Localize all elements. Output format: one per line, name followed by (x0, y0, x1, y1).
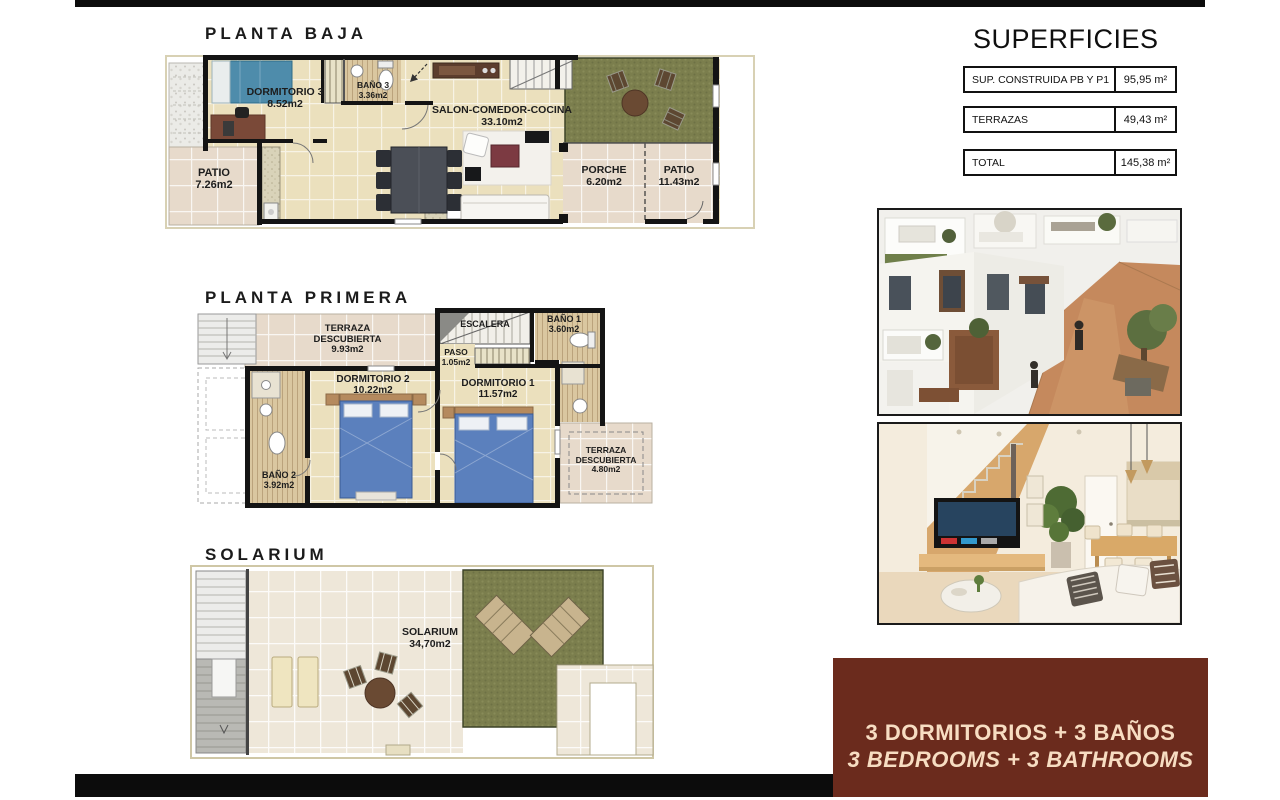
room-label-terraza1: TERRAZA DESCUBIERTA9.93m2 (290, 324, 405, 356)
wardrobe-icon (475, 348, 530, 364)
feature-banner: 3 DORMITORIOS + 3 BAÑOS 3 BEDROOMS + 3 B… (833, 658, 1208, 797)
stairs-icon (196, 571, 246, 753)
superficies-row-terrazas: TERRAZAS 49,43 m² (963, 106, 1177, 133)
stairs-divider-wall (246, 569, 249, 755)
room-label-bano2: BAÑO 23.92m2 (250, 470, 308, 490)
superficies-row-label: SUP. CONSTRUIDA PB Y P1 (965, 68, 1114, 91)
room-label-porche: PORCHE6.20m2 (563, 165, 645, 189)
superficies-row-label: TOTAL (965, 151, 1114, 174)
planta-baja-title: PLANTA BAJA (205, 24, 367, 44)
room-label-dormitorio2: DORMITORIO 210.22m2 (317, 374, 429, 396)
superficies-title: SUPERFICIES (973, 24, 1159, 55)
planta-baja-floorplan: DORMITORIO 38.52m2 BAÑO 33.36m2 SALON-CO… (165, 55, 755, 230)
banner-line-english: 3 BEDROOMS + 3 BATHROOMS (843, 746, 1198, 773)
brochure-page: { "titles": { "planta_baja": "PLANTA BAJ… (0, 0, 1280, 800)
room-label-paso: PASO1.05m2 (433, 348, 479, 367)
room-label-escalera: ESCALERA (445, 319, 525, 329)
interior-render-illustration (879, 424, 1180, 623)
room-label-bano3: BAÑO 33.36m2 (341, 81, 405, 100)
planta-baja-drawing (165, 55, 755, 230)
side-gravel-strip (169, 63, 205, 147)
room-label-solarium: SOLARIUM34,70m2 (375, 627, 485, 651)
lounge-area-icons (461, 131, 551, 221)
superficies-row-value: 145,38 m² (1114, 151, 1175, 174)
exterior-render-illustration (879, 210, 1180, 414)
planta-primera-title: PLANTA PRIMERA (205, 288, 411, 308)
dining-table-icon (376, 147, 462, 213)
room-label-bano1: BAÑO 13.60m2 (532, 314, 596, 334)
solarium-floorplan: SOLARIUM34,70m2 (190, 565, 660, 761)
bed1-icon (443, 407, 533, 503)
exterior-render-photo (877, 208, 1182, 416)
solarium-title: SOLARIUM (205, 545, 328, 565)
room-label-salon: SALON-COMEDOR-COCINA33.10m2 (423, 105, 581, 129)
banner-line-spanish: 3 DORMITORIOS + 3 BAÑOS (843, 719, 1198, 746)
superficies-row-total: TOTAL 145,38 m² (963, 149, 1177, 176)
room-label-dormitorio3: DORMITORIO 38.52m2 (225, 87, 345, 111)
interior-render-photo (877, 422, 1182, 625)
room-label-patio-left: PATIO7.26m2 (169, 167, 259, 192)
room-label-dormitorio1: DORMITORIO 111.57m2 (442, 378, 554, 400)
page-top-trim-bar (75, 0, 1205, 7)
step-icon (386, 745, 410, 755)
neighbor-structure (590, 683, 636, 755)
stairs-down-icon (198, 314, 256, 364)
superficies-row-label: TERRAZAS (965, 108, 1114, 131)
stairs-icon (510, 59, 572, 89)
page-bottom-trim-bar (75, 774, 833, 797)
superficies-row-construida: SUP. CONSTRUIDA PB Y P1 95,95 m² (963, 66, 1177, 93)
bed2-icon (326, 394, 426, 500)
solarium-drawing (190, 565, 660, 761)
planta-primera-floorplan: TERRAZA DESCUBIERTA9.93m2 ESCALERA BAÑO … (190, 308, 660, 510)
superficies-row-value: 49,43 m² (1114, 108, 1175, 131)
superficies-row-value: 95,95 m² (1114, 68, 1175, 91)
room-label-terraza2: TERRAZA DESCUBIERTA4.80m2 (564, 446, 648, 475)
room-label-patio-right: PATIO11.43m2 (643, 165, 715, 189)
kitchen-island-icon (433, 63, 499, 78)
